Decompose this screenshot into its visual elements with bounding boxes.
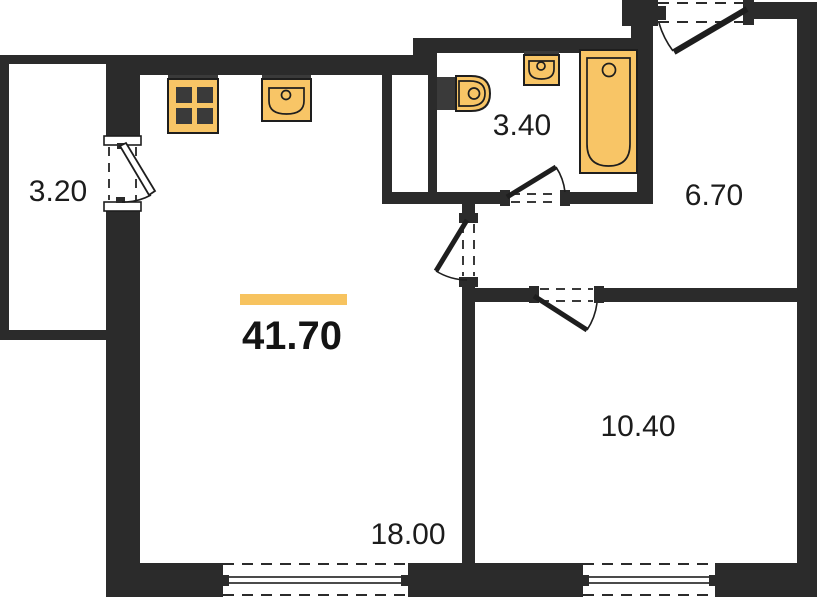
entrance-door xyxy=(658,3,747,52)
entry-left-post xyxy=(622,0,658,26)
bathroom-door xyxy=(500,167,570,206)
window-pane xyxy=(588,577,710,583)
washbasin-icon xyxy=(524,51,559,85)
bottom-wall-a xyxy=(106,563,223,597)
window-post xyxy=(581,575,589,586)
window-living-room xyxy=(221,564,409,595)
bottom-wall-c xyxy=(715,563,817,597)
toilet-icon xyxy=(437,76,490,111)
living-area-label: 18.00 xyxy=(370,518,445,551)
window-post xyxy=(709,575,717,586)
bedroom-door xyxy=(534,289,597,330)
window-post xyxy=(401,575,409,586)
stove-burner xyxy=(176,87,192,103)
top-wall-step xyxy=(413,38,437,75)
bottom-wall-b xyxy=(408,563,583,597)
hallway-area-label: 6.70 xyxy=(685,179,743,212)
bathroom-bottom-wall-left xyxy=(382,192,505,204)
partition-wall-left xyxy=(475,288,530,302)
window-bedroom xyxy=(581,564,717,595)
living-room-door xyxy=(436,220,474,280)
stove-burner xyxy=(176,108,192,124)
floor-plan: 3.20 3.40 6.70 10.40 18.00 41.70 xyxy=(0,0,820,600)
niche-right-wall xyxy=(428,75,437,204)
kitchen-sink-icon xyxy=(262,75,311,121)
window-post xyxy=(221,575,229,586)
door-swing-arc xyxy=(587,303,597,330)
bedroom-area-label: 10.40 xyxy=(600,410,675,443)
divider-stub xyxy=(462,204,475,213)
partition-post-right xyxy=(594,286,604,303)
right-wall xyxy=(797,2,817,597)
toilet-tank xyxy=(437,77,456,110)
bathtub-icon xyxy=(580,50,637,173)
total-area-highlight-bar xyxy=(240,294,347,305)
door-lintel-bottom xyxy=(104,202,141,211)
balcony-left-wall xyxy=(0,55,9,340)
door-leaf xyxy=(507,167,556,197)
stove-burner xyxy=(197,108,213,124)
bathroom-area-label: 3.40 xyxy=(493,109,551,142)
total-area-label: 41.70 xyxy=(242,314,342,358)
walls xyxy=(0,0,817,597)
bathroom-right-wall xyxy=(637,53,653,204)
balcony-area-label: 3.20 xyxy=(29,175,87,208)
floor-plan-svg: 3.20 3.40 6.70 10.40 18.00 41.70 xyxy=(0,0,820,600)
partition-wall-right xyxy=(604,288,797,302)
stove-burner xyxy=(197,87,213,103)
door-swing-arc xyxy=(556,167,565,192)
balcony-top-wall xyxy=(0,55,106,64)
niche-left-wall xyxy=(382,75,392,204)
door-latch-tab xyxy=(658,6,666,20)
divider-wall-lower xyxy=(462,287,475,563)
door-post xyxy=(560,190,570,206)
left-wall-lower xyxy=(106,210,140,597)
balcony-bottom-wall xyxy=(0,330,106,340)
stove-icon xyxy=(168,75,218,133)
door-swing-arc xyxy=(659,23,673,51)
top-wall-main xyxy=(106,55,413,75)
window-pane xyxy=(228,577,402,583)
door-leaf xyxy=(120,143,155,195)
divider-post-bottom xyxy=(459,277,478,287)
balcony-door xyxy=(104,136,155,211)
door-leaf xyxy=(674,9,747,52)
